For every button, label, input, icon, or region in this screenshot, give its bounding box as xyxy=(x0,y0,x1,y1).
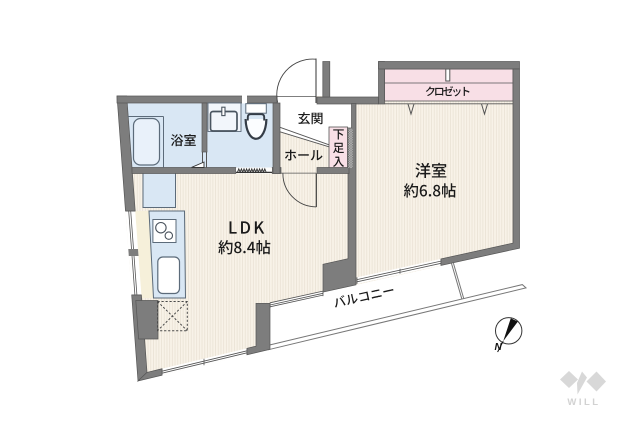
svg-text:WILL: WILL xyxy=(567,397,600,408)
svg-text:N: N xyxy=(495,342,503,353)
